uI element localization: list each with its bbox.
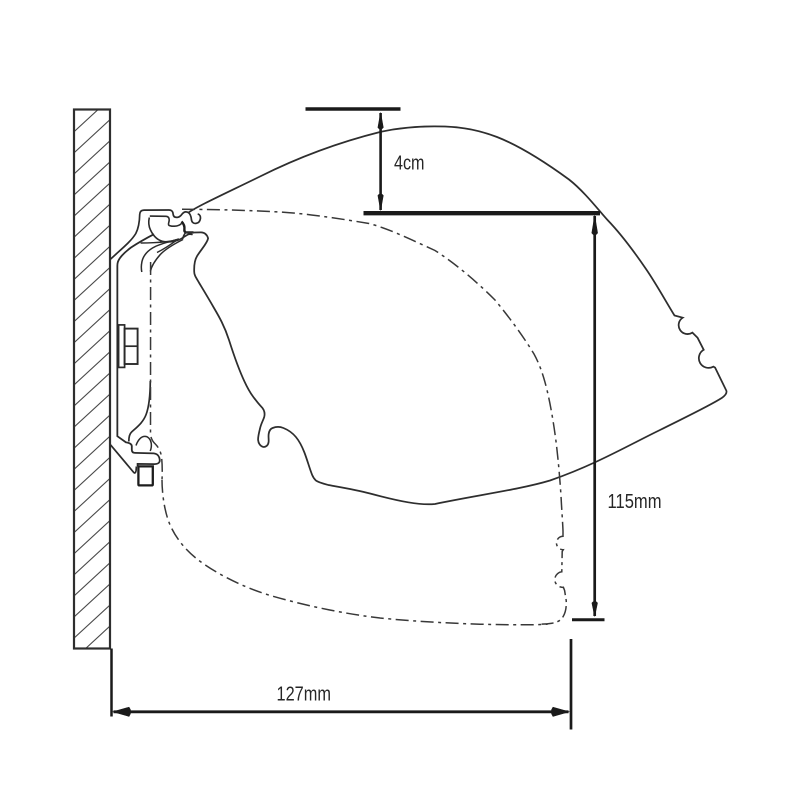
svg-text:127mm: 127mm <box>277 684 332 706</box>
svg-text:4cm: 4cm <box>394 152 425 175</box>
svg-text:115mm: 115mm <box>608 490 662 513</box>
